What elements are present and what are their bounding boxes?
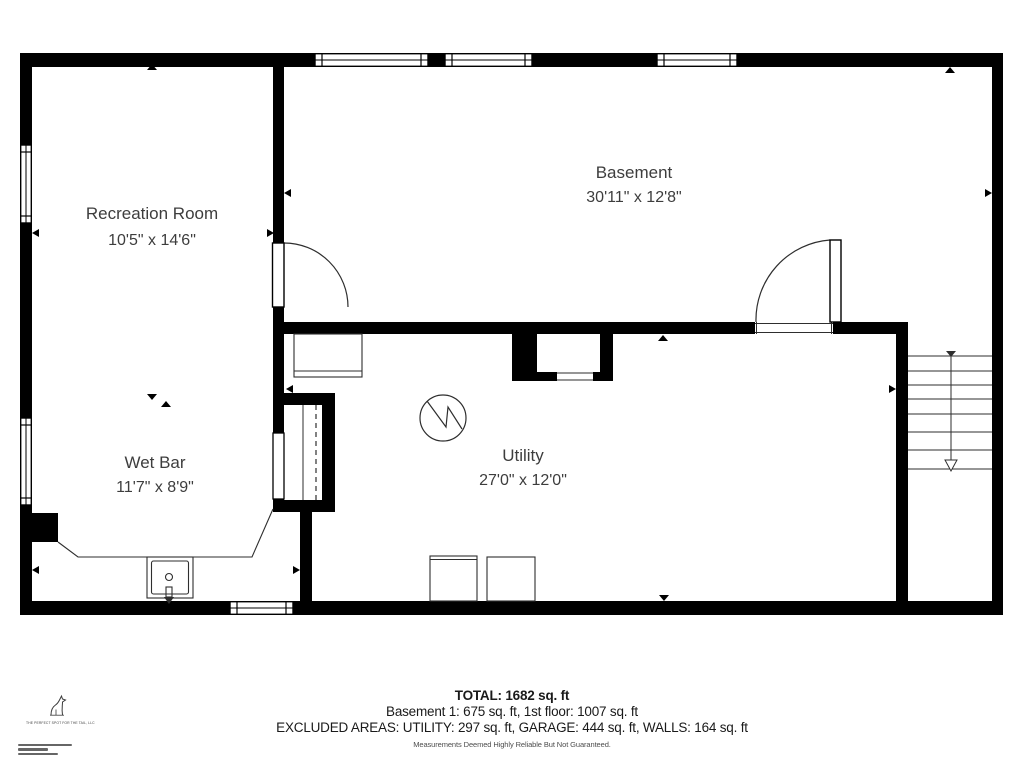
wetbar-counter	[58, 509, 273, 557]
electrical-panel-icon	[420, 395, 466, 441]
fine-print-line	[18, 753, 58, 755]
excluded-areas-line: EXCLUDED AREAS: UTILITY: 297 sq. ft, GAR…	[0, 720, 1024, 736]
chimney-right	[600, 334, 613, 381]
basement-cabinet	[294, 334, 362, 377]
room-dims-basement: 30'11" x 12'8"	[586, 189, 681, 206]
floor-plan-page: Recreation Room 10'5" x 14'6" Basement 3…	[0, 0, 1024, 768]
room-dims-wetbar: 11'7" x 8'9"	[116, 479, 194, 496]
room-label-wetbar: Wet Bar	[124, 453, 185, 472]
door-swing-arc	[756, 240, 830, 322]
door-basement-to-utility	[755, 240, 841, 334]
door-leaf	[830, 240, 841, 322]
fine-print-illegible	[18, 744, 72, 757]
door-rec-to-basement	[273, 243, 349, 307]
wall-wetbar-utility	[300, 508, 312, 608]
logo-caption: THE PERFECT SPOT FOR THE TAIL, LLC	[26, 721, 90, 725]
marker-right-icon	[985, 189, 992, 197]
marker-left-icon	[32, 566, 39, 574]
wetbar-sink-icon	[147, 557, 193, 604]
marker-up-icon	[658, 335, 668, 341]
marker-right-icon	[889, 385, 896, 393]
wall-wetbar-jog	[32, 513, 58, 542]
marker-down-icon	[147, 394, 157, 400]
disclaimer-text: Measurements Deemed Highly Reliable But …	[0, 740, 1024, 749]
fine-print-line	[18, 744, 72, 746]
marker-down-icon	[659, 595, 669, 601]
fine-print-line	[18, 748, 48, 750]
dog-icon	[48, 694, 68, 716]
closet-interior	[303, 405, 316, 500]
chimney-foot-left	[537, 372, 557, 381]
window-bottom-1	[230, 602, 293, 615]
door-leaf	[273, 433, 284, 499]
marker-up-icon	[161, 401, 171, 407]
wall-closet-right	[322, 393, 335, 512]
walls	[20, 53, 1003, 615]
chimney-opening	[557, 373, 593, 380]
door-swing-arc	[284, 243, 348, 307]
utility-appliance-2	[487, 557, 535, 601]
window-top-1	[315, 54, 428, 67]
chimney-foot-right	[593, 372, 600, 381]
company-logo: THE PERFECT SPOT FOR THE TAIL, LLC	[26, 694, 90, 725]
room-label-utility: Utility	[502, 446, 544, 465]
chimney-left	[512, 334, 537, 381]
wall-left	[20, 53, 32, 615]
total-area-line: TOTAL: 1682 sq. ft	[0, 688, 1024, 704]
marker-right-icon	[267, 229, 274, 237]
floor-areas-line: Basement 1: 675 sq. ft, 1st floor: 1007 …	[0, 704, 1024, 720]
window-left-1	[21, 145, 32, 223]
utility-appliance-1	[430, 556, 477, 601]
wall-stair-left	[896, 322, 908, 608]
door-wetbar-closet	[273, 433, 284, 499]
marker-left-icon	[32, 229, 39, 237]
floor-plan-svg: Recreation Room 10'5" x 14'6" Basement 3…	[0, 0, 1024, 768]
area-summary: TOTAL: 1682 sq. ft Basement 1: 675 sq. f…	[0, 688, 1024, 749]
window-top-3	[657, 54, 737, 67]
window-left-2	[21, 418, 32, 505]
marker-left-icon	[286, 385, 293, 393]
room-dims-recreation: 10'5" x 14'6"	[108, 232, 196, 249]
room-label-recreation: Recreation Room	[86, 204, 218, 223]
door-leaf	[273, 243, 285, 307]
wall-bottom	[20, 601, 1003, 615]
room-label-basement: Basement	[596, 163, 673, 182]
wall-right	[992, 53, 1003, 615]
room-dims-utility: 27'0" x 12'0"	[479, 472, 567, 489]
window-top-2	[445, 54, 532, 67]
staircase	[908, 351, 992, 471]
marker-left-icon	[284, 189, 291, 197]
marker-up-icon	[945, 67, 955, 73]
marker-right-icon	[293, 566, 300, 574]
